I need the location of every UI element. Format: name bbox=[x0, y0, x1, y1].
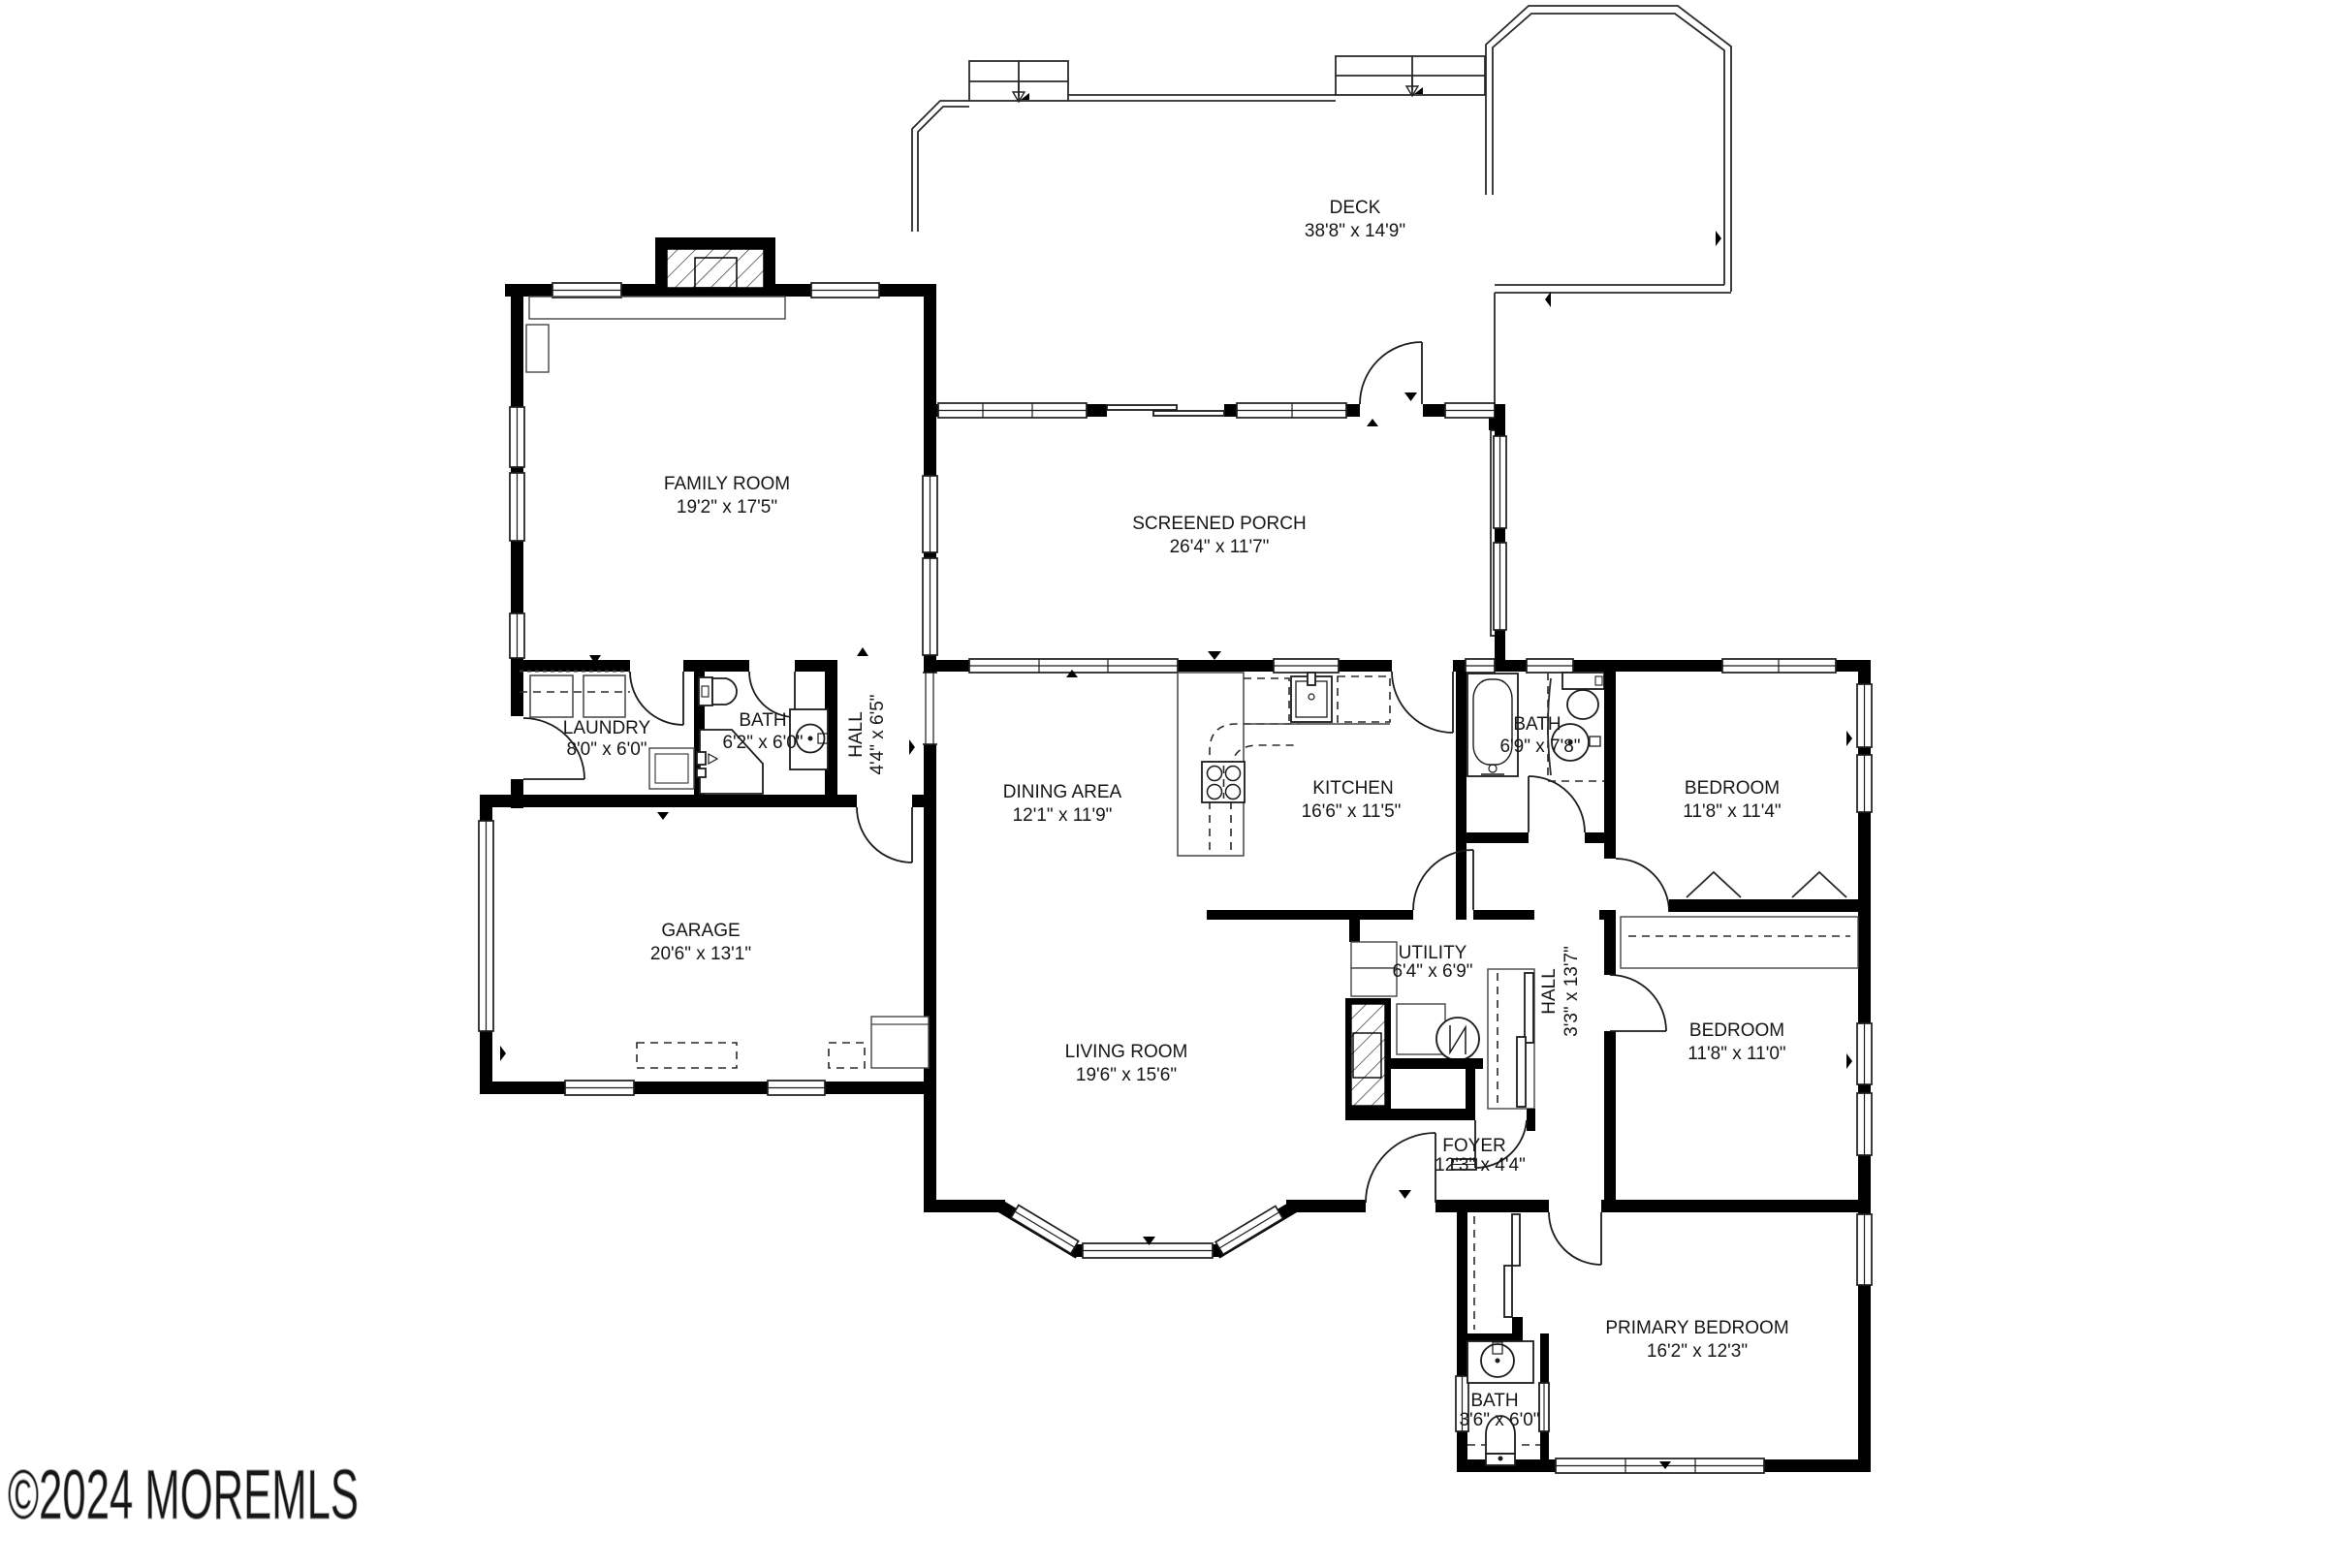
svg-text:BEDROOM: BEDROOM bbox=[1689, 1020, 1784, 1041]
svg-text:8'0" x 6'0": 8'0" x 6'0" bbox=[566, 739, 647, 760]
svg-text:38'8" x 14'9": 38'8" x 14'9" bbox=[1305, 221, 1405, 241]
svg-text:UTILITY: UTILITY bbox=[1399, 943, 1467, 963]
svg-text:BATH: BATH bbox=[1513, 714, 1561, 735]
svg-text:SCREENED PORCH: SCREENED PORCH bbox=[1132, 514, 1306, 534]
svg-text:LIVING ROOM: LIVING ROOM bbox=[1065, 1042, 1188, 1062]
svg-text:12'3" x 4'4": 12'3" x 4'4" bbox=[1435, 1155, 1526, 1176]
svg-text:6'2" x 6'0": 6'2" x 6'0" bbox=[722, 733, 803, 753]
svg-text:11'8" x 11'0": 11'8" x 11'0" bbox=[1687, 1044, 1785, 1064]
svg-text:LAUNDRY: LAUNDRY bbox=[563, 718, 651, 738]
svg-text:20'6" x 13'1": 20'6" x 13'1" bbox=[650, 944, 751, 964]
svg-text:16'6" x 11'5": 16'6" x 11'5" bbox=[1302, 801, 1402, 822]
svg-text:HALL: HALL bbox=[1539, 968, 1560, 1015]
svg-text:3'6" x 6'0": 3'6" x 6'0" bbox=[1459, 1410, 1539, 1430]
svg-text:GARAGE: GARAGE bbox=[661, 921, 740, 941]
svg-text:DECK: DECK bbox=[1330, 198, 1381, 218]
svg-text:©2024 MOREMLS: ©2024 MOREMLS bbox=[8, 1457, 359, 1534]
svg-text:4'4" x 6'5": 4'4" x 6'5" bbox=[867, 694, 888, 774]
svg-text:BATH: BATH bbox=[739, 710, 786, 731]
svg-text:19'2" x 17'5": 19'2" x 17'5" bbox=[677, 497, 777, 517]
svg-text:3'3" x 13'7": 3'3" x 13'7" bbox=[1561, 946, 1582, 1037]
svg-text:16'2" x 12'3": 16'2" x 12'3" bbox=[1647, 1341, 1748, 1362]
svg-text:FAMILY ROOM: FAMILY ROOM bbox=[664, 474, 790, 494]
svg-text:DINING AREA: DINING AREA bbox=[1003, 782, 1122, 802]
svg-text:11'8" x 11'4": 11'8" x 11'4" bbox=[1683, 801, 1781, 822]
svg-text:26'4" x 11'7": 26'4" x 11'7" bbox=[1170, 537, 1270, 557]
svg-text:FOYER: FOYER bbox=[1442, 1136, 1505, 1156]
svg-text:HALL: HALL bbox=[846, 711, 867, 758]
svg-text:BEDROOM: BEDROOM bbox=[1685, 778, 1780, 799]
svg-text:19'6" x 15'6": 19'6" x 15'6" bbox=[1076, 1065, 1177, 1085]
svg-text:12'1" x 11'9": 12'1" x 11'9" bbox=[1013, 805, 1113, 826]
svg-text:PRIMARY BEDROOM: PRIMARY BEDROOM bbox=[1605, 1318, 1788, 1338]
svg-text:BATH: BATH bbox=[1470, 1391, 1518, 1411]
svg-text:6'9" x 7'8": 6'9" x 7'8" bbox=[1499, 737, 1580, 757]
svg-text:KITCHEN: KITCHEN bbox=[1312, 778, 1393, 799]
svg-text:6'4" x 6'9": 6'4" x 6'9" bbox=[1392, 961, 1472, 982]
